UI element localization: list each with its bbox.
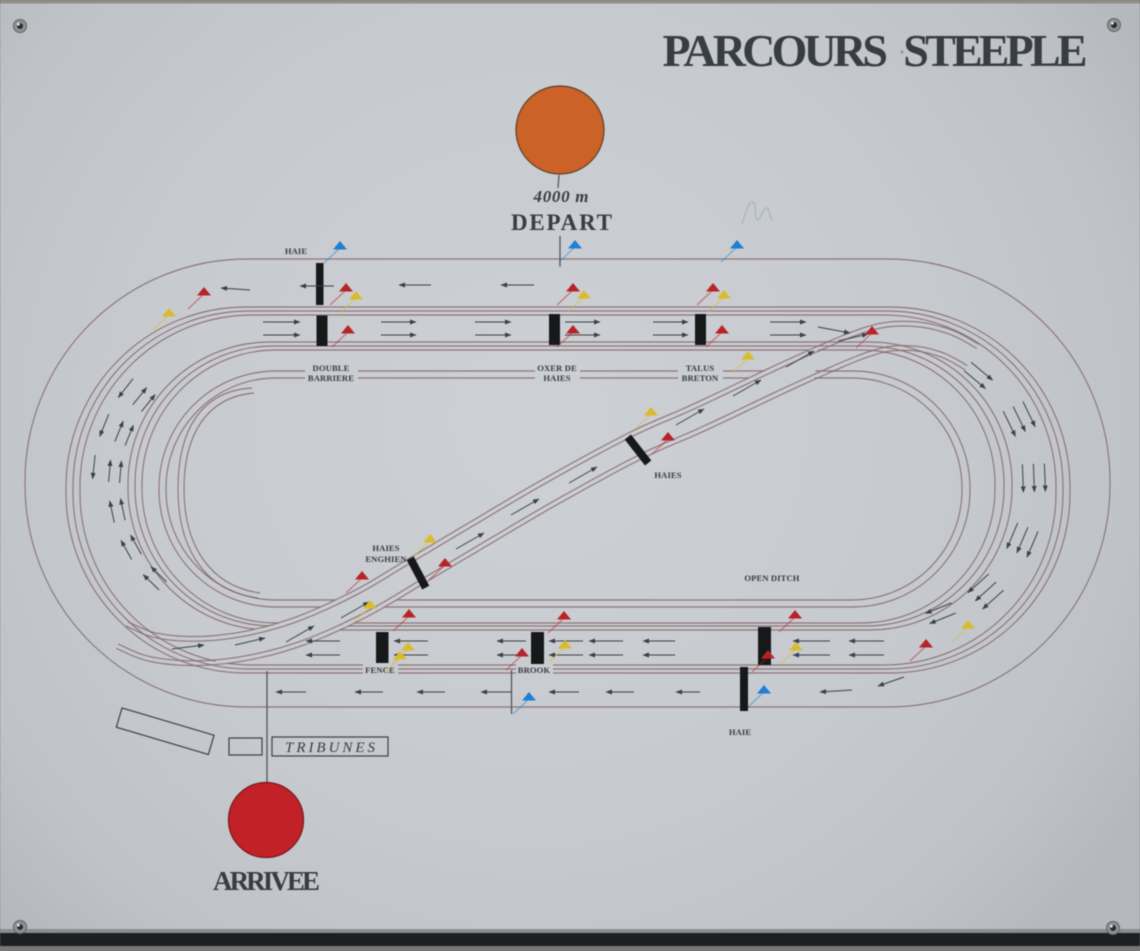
svg-text:BROOK: BROOK bbox=[518, 665, 551, 675]
svg-text:OPEN DITCH: OPEN DITCH bbox=[744, 573, 799, 583]
svg-text:HAIES: HAIES bbox=[654, 470, 681, 480]
svg-text:HAIE: HAIE bbox=[729, 727, 752, 737]
svg-text:HAIE: HAIE bbox=[285, 246, 308, 256]
svg-text:TRIBUNES: TRIBUNES bbox=[285, 740, 376, 756]
svg-text:PARCOURS STEEPLE: PARCOURS STEEPLE bbox=[663, 25, 1088, 76]
svg-text:OXER DE: OXER DE bbox=[537, 363, 577, 373]
svg-text:BARRIERE: BARRIERE bbox=[308, 373, 354, 383]
svg-text:HAIES: HAIES bbox=[543, 373, 570, 383]
svg-text:ARRIVEE: ARRIVEE bbox=[213, 866, 321, 896]
svg-text:ENGHIEN: ENGHIEN bbox=[365, 554, 407, 564]
svg-text:4000 m: 4000 m bbox=[533, 187, 589, 206]
svg-text:HAIES: HAIES bbox=[372, 543, 399, 553]
svg-text:TALUS: TALUS bbox=[686, 363, 715, 373]
svg-text:DEPART: DEPART bbox=[511, 210, 613, 235]
svg-text:BRETON: BRETON bbox=[682, 373, 719, 383]
svg-text:DOUBLE: DOUBLE bbox=[313, 363, 350, 373]
